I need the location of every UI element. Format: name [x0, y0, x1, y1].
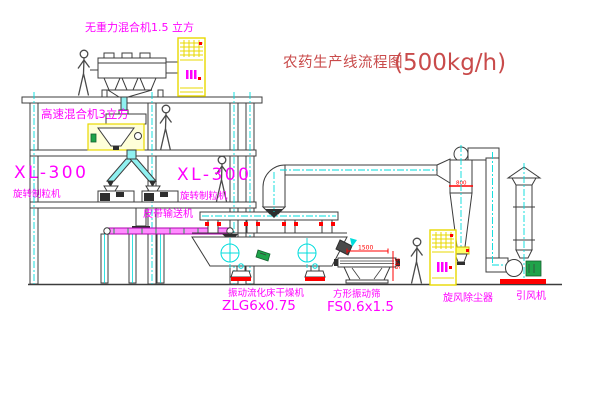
centerline-target-right — [298, 244, 316, 262]
cabinet-display-marks — [186, 70, 197, 79]
screen-length-dim: 1500 — [358, 245, 373, 252]
label-cyclone: 旋风除尘器 — [443, 291, 493, 304]
cabinet-display-marks — [437, 262, 448, 272]
screen-side-dim: 545 — [393, 258, 400, 270]
cyclone-dim-text: 800 — [456, 181, 467, 187]
drawing-title-capacity: (500kg/h) — [394, 50, 506, 76]
label-belt-conveyor: 皮带输送机 — [143, 207, 193, 220]
fluid-bed-dryer — [192, 212, 357, 281]
label-high-speed-mixer: 高速混合机3立方 — [41, 107, 129, 121]
induced-draft-fan — [500, 260, 546, 285]
label-granulator-right-model: XL-300 — [177, 165, 251, 185]
label-granulator-left-name: 旋转制粒机 — [13, 188, 61, 200]
label-granulator-right-name: 旋转制粒机 — [180, 190, 228, 202]
granulator-left — [98, 186, 134, 202]
label-dryer-model: ZLG6x0.75 — [222, 298, 296, 314]
control-cabinet-right — [430, 230, 456, 285]
exhaust-duct — [263, 165, 444, 218]
label-granulator-left-model: XL-300 — [14, 163, 88, 183]
granulator-right — [142, 186, 178, 202]
worker-icon-roof — [78, 50, 90, 95]
cad-drawing-sheet: 800 — [0, 0, 600, 403]
control-cabinet-top — [178, 38, 205, 96]
gravity-free-mixer — [90, 53, 184, 97]
drawing-title-name: 农药生产线流程图 — [283, 54, 403, 71]
label-screen-model: FS0.6x1.5 — [327, 299, 394, 315]
centerline-target-left — [221, 244, 239, 262]
worker-icon-ground — [411, 238, 423, 283]
drawing-title: 农药生产线流程图 (500kg/h) — [283, 50, 506, 76]
process-flow-diagram: 800 — [0, 0, 600, 403]
label-fan: 引风机 — [516, 289, 546, 302]
downcomer-duct — [486, 152, 510, 272]
label-gravity-mixer: 无重力混合机1.5 立方 — [85, 20, 194, 34]
worker-icon-floor2 — [160, 105, 172, 150]
